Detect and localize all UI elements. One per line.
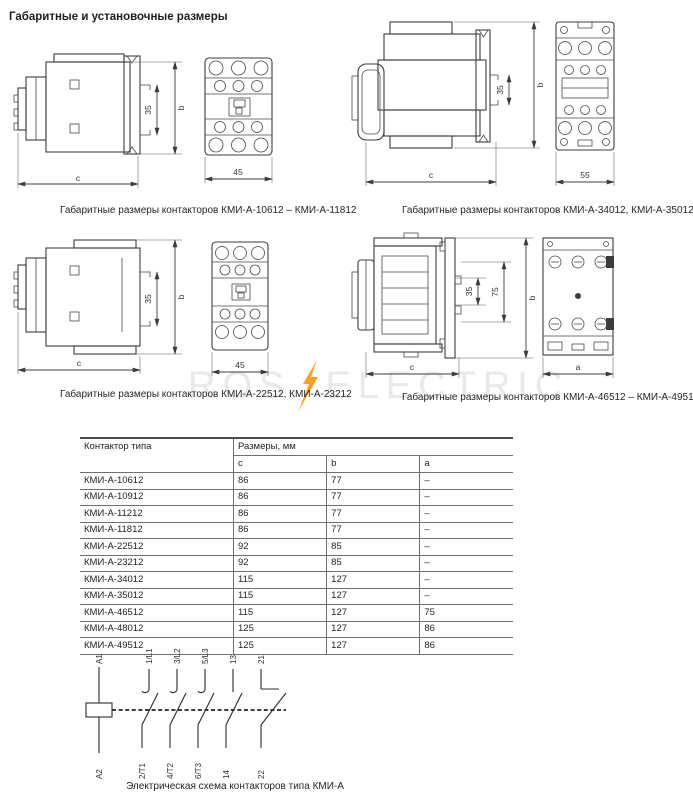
pole-2-main-contact: 3/L2 4/T2 bbox=[166, 648, 186, 779]
dim-b: b bbox=[535, 82, 545, 87]
cell-a: 86 bbox=[420, 621, 513, 638]
aux-no-contact: 13 14 bbox=[222, 655, 242, 779]
dim-75: 75 bbox=[490, 287, 500, 297]
dim-a: a bbox=[576, 362, 581, 372]
caption-kmi-34012-35012: Габаритные размеры контакторов КМИ-А-340… bbox=[402, 205, 692, 216]
cell-a: – bbox=[420, 588, 513, 605]
cell-a: – bbox=[420, 572, 513, 589]
drawing-kmi-46512-49512: 35 75 b c bbox=[350, 232, 650, 414]
dim-55: 55 bbox=[580, 170, 590, 180]
side-view: 35 b c bbox=[14, 240, 186, 374]
cell-type: КМИ-А-11812 bbox=[80, 522, 234, 539]
aux-no-bottom-label: 14 bbox=[222, 770, 231, 779]
aux-no-top-label: 13 bbox=[229, 655, 238, 664]
cell-c: 86 bbox=[234, 489, 327, 506]
table-header-contactor-type: Контактор типа bbox=[80, 438, 234, 473]
side-view: 35 b c bbox=[14, 54, 186, 188]
drawing-kmi-10612-11812: 35 b c 45 bbox=[10, 38, 345, 208]
cell-b: 127 bbox=[327, 572, 420, 589]
cell-type: КМИ-А-11212 bbox=[80, 506, 234, 523]
pole-1-bottom-label: 2/T1 bbox=[138, 762, 147, 779]
pole-1-main-contact: 1/L1 2/T1 bbox=[138, 648, 158, 779]
cell-c: 86 bbox=[234, 506, 327, 523]
aux-nc-contact: 21 22 bbox=[257, 655, 286, 779]
table-row: КМИ-А-48012 125 127 86 bbox=[80, 621, 513, 638]
cell-type: КМИ-А-34012 bbox=[80, 572, 234, 589]
catalog-page: ROS ELECTRIC Габаритные и установочные р… bbox=[0, 0, 693, 800]
table-row: КМИ-А-46512 115 127 75 bbox=[80, 605, 513, 622]
dim-45: 45 bbox=[235, 360, 245, 370]
dimensions-table: Контактор типа Размеры, мм c b a КМИ-А-1… bbox=[80, 437, 513, 655]
pole-3-bottom-label: 6/T3 bbox=[194, 762, 203, 779]
table-row: КМИ-А-11212 86 77 – bbox=[80, 506, 513, 523]
cell-b: 127 bbox=[327, 638, 420, 655]
cell-c: 115 bbox=[234, 605, 327, 622]
cell-b: 85 bbox=[327, 539, 420, 556]
table-row: КМИ-А-34012 115 127 – bbox=[80, 572, 513, 589]
aux-nc-top-label: 21 bbox=[257, 655, 266, 664]
coil-terminal-a1: A1 bbox=[95, 654, 104, 664]
table-row: КМИ-А-10612 86 77 – bbox=[80, 473, 513, 490]
table-row: КМИ-А-35012 115 127 – bbox=[80, 588, 513, 605]
front-view: 45 bbox=[212, 242, 268, 376]
table-row: КМИ-А-22512 92 85 – bbox=[80, 539, 513, 556]
caption-kmi-10612-11812: Габаритные размеры контакторов КМИ-А-106… bbox=[60, 205, 350, 216]
table-subheader-c: c bbox=[234, 456, 327, 473]
coil-terminal-a2: A2 bbox=[95, 769, 104, 779]
cell-b: 127 bbox=[327, 621, 420, 638]
cell-a: – bbox=[420, 506, 513, 523]
cell-b: 77 bbox=[327, 473, 420, 490]
dim-c: c bbox=[410, 362, 415, 372]
cell-a: – bbox=[420, 489, 513, 506]
dim-b: b bbox=[527, 295, 537, 300]
dim-45: 45 bbox=[233, 167, 243, 177]
dim-35: 35 bbox=[464, 287, 474, 297]
pole-3-main-contact: 5/L3 6/T3 bbox=[194, 648, 214, 779]
cell-type: КМИ-А-49512 bbox=[80, 638, 234, 655]
drawing-kmi-22512-23212: 35 b c 45 bbox=[10, 234, 345, 384]
cell-c: 92 bbox=[234, 539, 327, 556]
dim-b: b bbox=[176, 105, 186, 110]
cell-type: КМИ-А-48012 bbox=[80, 621, 234, 638]
front-view: 55 bbox=[556, 22, 614, 186]
front-view: 45 bbox=[205, 58, 272, 183]
cell-c: 86 bbox=[234, 473, 327, 490]
caption-kmi-22512-23212: Габаритные размеры контакторов КМИ-А-225… bbox=[60, 389, 350, 400]
cell-b: 77 bbox=[327, 506, 420, 523]
cell-type: КМИ-А-10612 bbox=[80, 473, 234, 490]
dim-c: c bbox=[77, 358, 82, 368]
dim-35: 35 bbox=[143, 294, 153, 304]
caption-electrical-schematic: Электрическая схема контакторов типа КМИ… bbox=[105, 781, 365, 792]
dim-c: c bbox=[76, 173, 81, 183]
cell-type: КМИ-А-10912 bbox=[80, 489, 234, 506]
table-row: КМИ-А-10912 86 77 – bbox=[80, 489, 513, 506]
pole-1-top-label: 1/L1 bbox=[145, 648, 154, 664]
cell-a: 75 bbox=[420, 605, 513, 622]
dim-35: 35 bbox=[143, 105, 153, 115]
side-view: 35 75 b c bbox=[352, 233, 537, 378]
dim-b: b bbox=[176, 294, 186, 299]
cell-type: КМИ-А-22512 bbox=[80, 539, 234, 556]
side-view: 35 b c bbox=[352, 22, 545, 186]
table-subheader-b: b bbox=[327, 456, 420, 473]
coil-symbol: A1 A2 bbox=[86, 654, 112, 779]
cell-b: 127 bbox=[327, 588, 420, 605]
cell-a: – bbox=[420, 473, 513, 490]
cell-b: 85 bbox=[327, 555, 420, 572]
drawing-kmi-34012-35012: 35 b c 55 bbox=[350, 14, 645, 200]
aux-nc-bottom-label: 22 bbox=[257, 770, 266, 779]
table-row: КМИ-А-23212 92 85 – bbox=[80, 555, 513, 572]
pole-3-top-label: 5/L3 bbox=[201, 648, 210, 664]
cell-b: 77 bbox=[327, 489, 420, 506]
caption-kmi-46512-49512: Габаритные размеры контакторов КМИ-А-465… bbox=[402, 392, 692, 403]
cell-type: КМИ-А-23212 bbox=[80, 555, 234, 572]
cell-type: КМИ-А-35012 bbox=[80, 588, 234, 605]
electrical-schematic: A1 A2 1/L1 2/T1 3/L2 4/T2 5/L3 6/T3 bbox=[80, 653, 355, 785]
cell-c: 115 bbox=[234, 588, 327, 605]
cell-c: 125 bbox=[234, 621, 327, 638]
cell-b: 77 bbox=[327, 522, 420, 539]
front-view: a bbox=[543, 238, 614, 378]
cell-type: КМИ-А-46512 bbox=[80, 605, 234, 622]
page-title: Габаритные и установочные размеры bbox=[9, 11, 228, 23]
dim-c: c bbox=[429, 170, 434, 180]
table-header-dimensions-group: Размеры, мм bbox=[234, 438, 514, 456]
pole-2-bottom-label: 4/T2 bbox=[166, 762, 175, 779]
cell-c: 125 bbox=[234, 638, 327, 655]
cell-a: – bbox=[420, 555, 513, 572]
cell-c: 92 bbox=[234, 555, 327, 572]
cell-a: – bbox=[420, 522, 513, 539]
cell-c: 115 bbox=[234, 572, 327, 589]
table-subheader-a: a bbox=[420, 456, 513, 473]
table-row: КМИ-А-11812 86 77 – bbox=[80, 522, 513, 539]
dim-35: 35 bbox=[495, 85, 505, 95]
cell-a: – bbox=[420, 539, 513, 556]
pole-2-top-label: 3/L2 bbox=[173, 648, 182, 664]
cell-b: 127 bbox=[327, 605, 420, 622]
cell-a: 86 bbox=[420, 638, 513, 655]
cell-c: 86 bbox=[234, 522, 327, 539]
